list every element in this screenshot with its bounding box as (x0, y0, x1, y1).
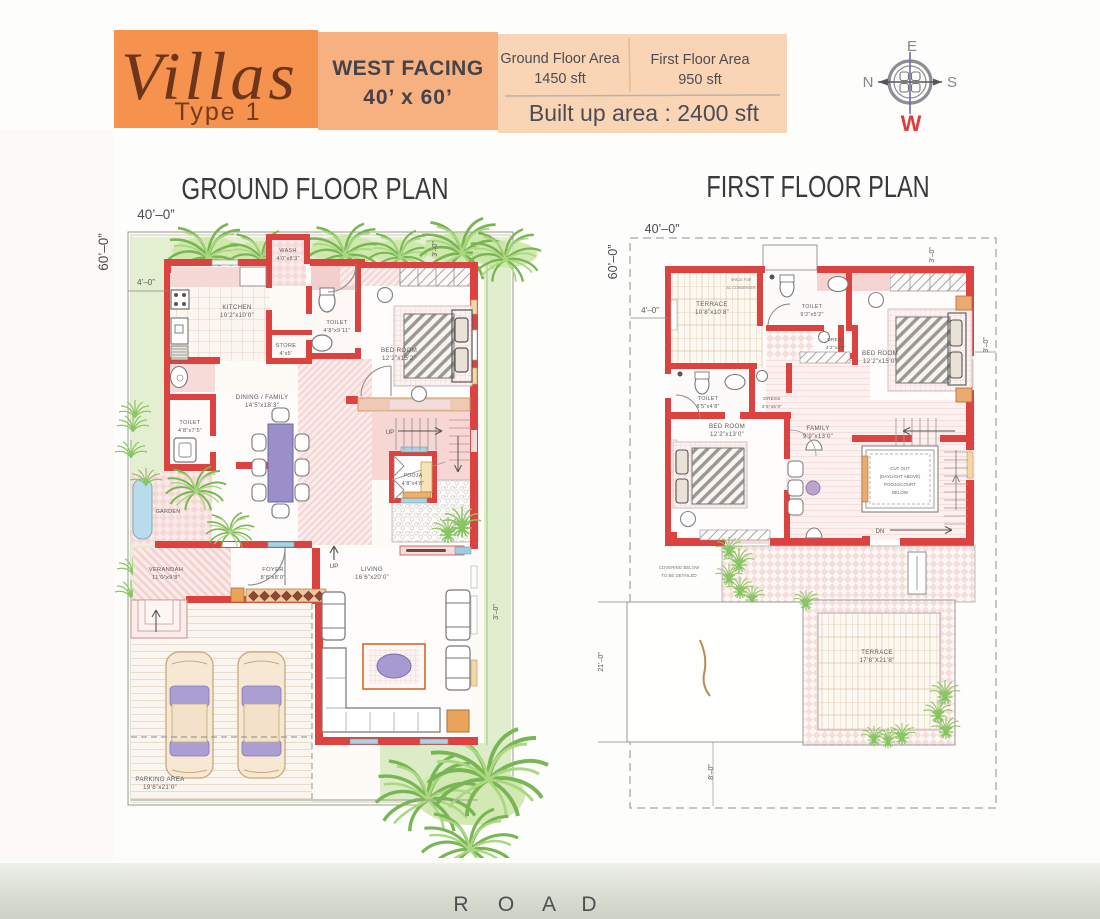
svg-text:12’2”x15’2”: 12’2”x15’2” (382, 355, 416, 362)
svg-text:FAMILY: FAMILY (806, 425, 829, 432)
svg-text:3’–0”: 3’–0” (983, 337, 990, 353)
svg-text:POOJA/COURT: POOJA/COURT (884, 482, 916, 487)
svg-text:WEST FACING: WEST FACING (332, 57, 483, 80)
svg-text:8’5”x4’8”: 8’5”x4’8” (696, 404, 719, 410)
svg-text:11’0”x9’8”: 11’0”x9’8” (152, 575, 180, 581)
svg-text:PARKING AREA: PARKING AREA (135, 776, 185, 783)
svg-text:8’8”x8’0”: 8’8”x8’0” (261, 575, 286, 581)
svg-text:UP: UP (386, 430, 394, 436)
svg-text:Ground Floor Area: Ground Floor Area (500, 51, 620, 67)
svg-text:WASH: WASH (279, 248, 296, 254)
svg-text:POOJA: POOJA (403, 473, 422, 479)
svg-text:3’–0”: 3’–0” (432, 241, 439, 257)
svg-text:10’2”x10’0”: 10’2”x10’0” (220, 312, 254, 319)
svg-text:12’2”x15’0”: 12’2”x15’0” (863, 358, 897, 365)
svg-text:Type 1: Type 1 (174, 98, 261, 126)
svg-text:TERRACE: TERRACE (696, 301, 728, 308)
svg-text:3’–0”: 3’–0” (929, 247, 936, 263)
svg-text:4’8”x7’5”: 4’8”x7’5” (178, 428, 202, 434)
svg-text:W: W (901, 111, 922, 136)
svg-text:TOILET: TOILET (698, 396, 719, 402)
svg-text:UP: UP (329, 563, 338, 570)
svg-text:SPACE FOR: SPACE FOR (731, 278, 752, 282)
svg-text:21’–0”: 21’–0” (598, 652, 605, 672)
svg-text:4’2”x4’8”: 4’2”x4’8” (826, 345, 846, 350)
svg-text:4’–0”: 4’–0” (641, 306, 659, 315)
svg-text:First Floor Area: First Floor Area (650, 52, 750, 68)
svg-text:FIRST FLOOR PLAN: FIRST FLOOR PLAN (706, 169, 929, 204)
svg-text:BELOW: BELOW (892, 490, 909, 495)
svg-text:N: N (863, 74, 874, 91)
svg-text:4’x5’: 4’x5’ (279, 351, 292, 357)
svg-text:1450 sft: 1450 sft (534, 71, 586, 87)
svg-text:TO BE DETAILED: TO BE DETAILED (661, 573, 696, 578)
svg-text:4’0”x8’3”: 4’0”x8’3” (276, 256, 299, 262)
svg-text:4’8”x9’11”: 4’8”x9’11” (323, 328, 350, 334)
svg-text:D: D (581, 893, 596, 916)
svg-text:TOILET: TOILET (802, 304, 823, 310)
svg-text:DINING / FAMILY: DINING / FAMILY (236, 394, 289, 401)
svg-text:S: S (947, 74, 957, 91)
svg-text:AC CONDENSER: AC CONDENSER (727, 286, 756, 290)
svg-text:STORE: STORE (276, 343, 297, 349)
svg-text:17’8”X21’8”: 17’8”X21’8” (860, 657, 895, 664)
svg-text:BED ROOM: BED ROOM (381, 347, 417, 354)
svg-text:40’–0”: 40’–0” (645, 222, 680, 236)
svg-text:O: O (498, 893, 514, 916)
svg-text:LIVING: LIVING (361, 566, 383, 573)
svg-text:CUT OUT: CUT OUT (890, 466, 910, 471)
svg-text:COVERING BELOW: COVERING BELOW (659, 565, 700, 570)
svg-text:GROUND FLOOR PLAN: GROUND FLOOR PLAN (181, 171, 448, 206)
svg-text:14’5”x18’3”: 14’5”x18’3” (245, 402, 279, 409)
svg-text:R: R (453, 893, 468, 916)
svg-text:40’–0”: 40’–0” (137, 207, 175, 222)
svg-text:(DAYLIGHT ABOVE): (DAYLIGHT ABOVE) (880, 474, 921, 479)
svg-text:8’–0”: 8’–0” (708, 764, 715, 780)
svg-text:A: A (542, 893, 556, 916)
svg-text:DRESS: DRESS (827, 337, 844, 342)
svg-text:19’8”x21’0”: 19’8”x21’0” (143, 784, 177, 791)
svg-text:60’–0”: 60’–0” (96, 233, 111, 271)
svg-text:950 sft: 950 sft (678, 72, 722, 88)
svg-text:KITCHEN: KITCHEN (222, 304, 251, 311)
svg-text:16’6”x20’0”: 16’6”x20’0” (355, 574, 389, 581)
svg-text:DRESS: DRESS (763, 396, 780, 401)
svg-text:BED ROOM: BED ROOM (709, 423, 745, 430)
svg-text:TOILET: TOILET (179, 420, 201, 426)
svg-text:10’8”x10’8”: 10’8”x10’8” (695, 309, 729, 316)
svg-text:9’9”x13’0”: 9’9”x13’0” (803, 433, 833, 440)
svg-text:3’–0”: 3’–0” (493, 604, 500, 620)
svg-text:FOYER: FOYER (262, 567, 283, 573)
svg-text:9’2”x5’2”: 9’2”x5’2” (800, 312, 823, 318)
svg-text:60’–0”: 60’–0” (606, 245, 620, 280)
svg-text:3’5”x5’0”: 3’5”x5’0” (762, 404, 782, 409)
svg-text:VERANDAH: VERANDAH (149, 567, 184, 573)
svg-text:E: E (907, 38, 917, 55)
svg-text:4’–0”: 4’–0” (137, 278, 155, 287)
svg-text:TOILET: TOILET (326, 320, 348, 326)
svg-text:DN: DN (876, 529, 885, 535)
svg-text:Built up area : 2400 sft: Built up area : 2400 sft (529, 100, 760, 126)
svg-text:40’ x 60’: 40’ x 60’ (363, 86, 453, 109)
svg-text:TERRACE: TERRACE (861, 649, 893, 656)
svg-text:BED ROOM: BED ROOM (862, 350, 898, 357)
svg-text:12’2”x13’0”: 12’2”x13’0” (710, 431, 744, 438)
svg-text:GARDEN: GARDEN (156, 509, 181, 515)
svg-text:4’8”x4’8”: 4’8”x4’8” (402, 481, 425, 487)
